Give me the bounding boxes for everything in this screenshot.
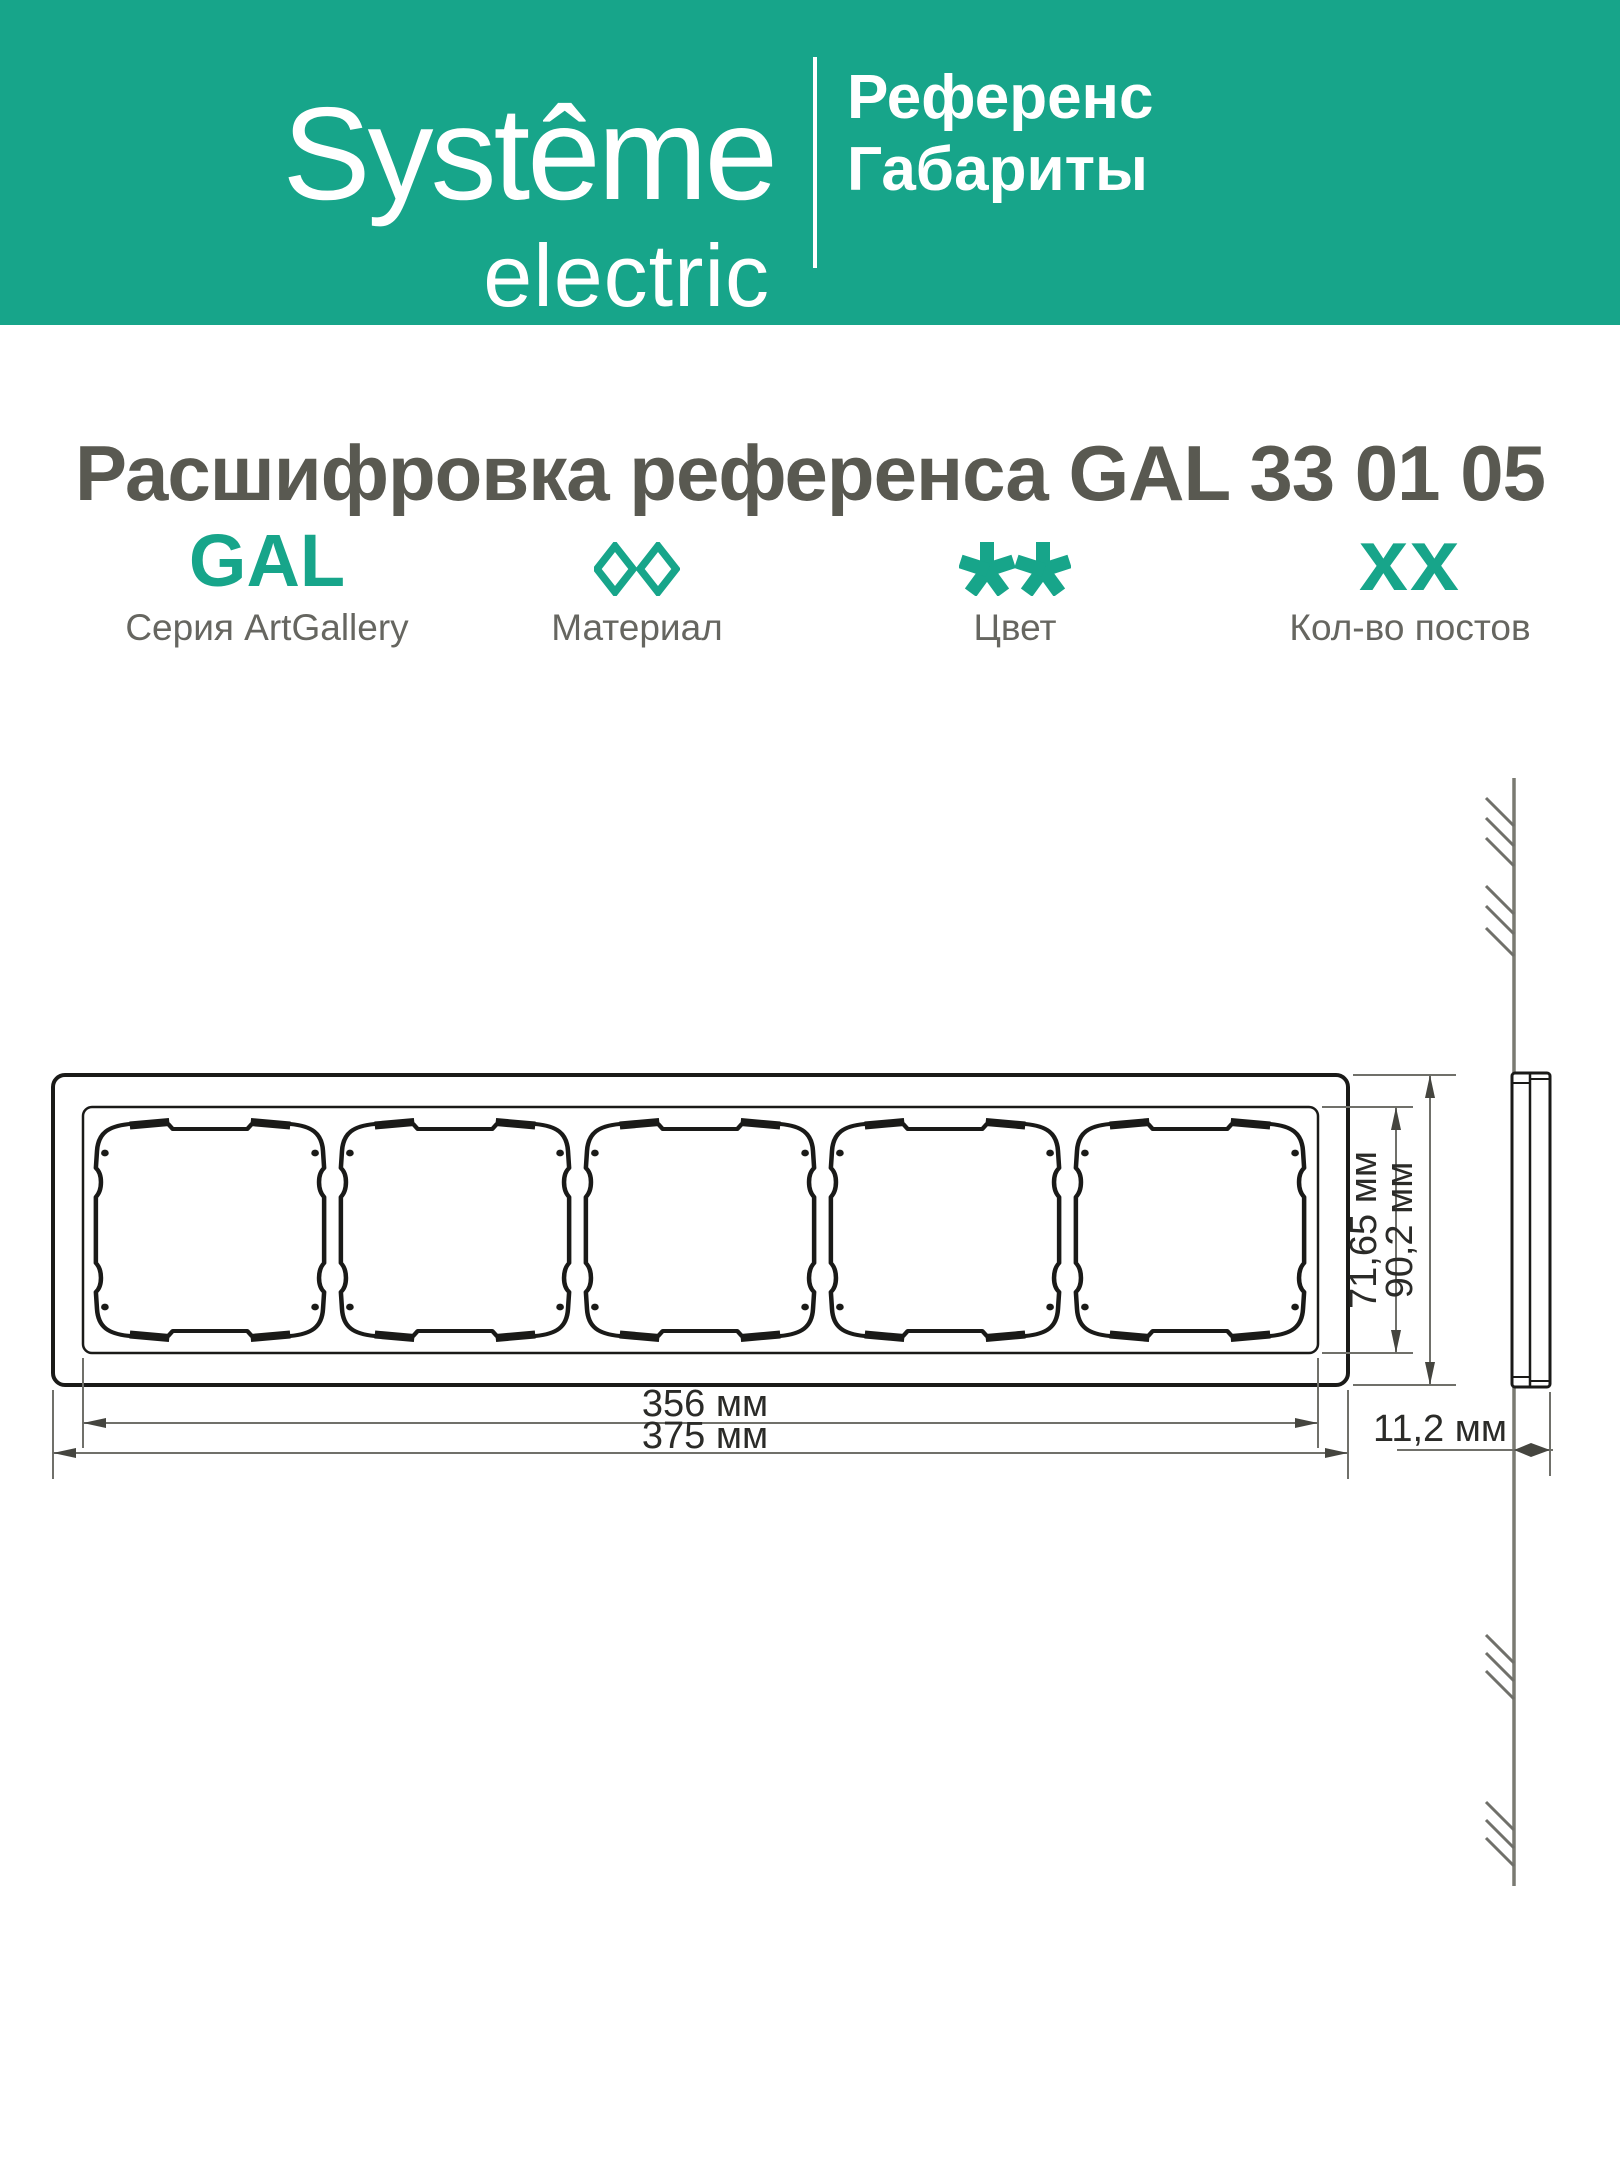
dimension-drawing: 356 мм 375 мм 71,65 мм 90,2 мм 11,2 мм: [0, 0, 1620, 2160]
socket-window: [586, 1122, 814, 1338]
dim-frame-width: 375 мм: [642, 1415, 768, 1457]
dim-depth: 11,2 мм: [1373, 1408, 1507, 1450]
dim-frame-height: 90,2 мм: [1379, 1162, 1421, 1299]
hatch-marks: [1486, 798, 1514, 1866]
socket-window: [831, 1122, 1059, 1338]
socket-window: [341, 1122, 569, 1338]
front-view: [53, 1075, 1348, 1385]
side-view: [1512, 1073, 1550, 1387]
socket-window: [1076, 1122, 1304, 1338]
page: Systême electric Референс Габариты Расши…: [0, 0, 1620, 2160]
socket-window: [96, 1122, 324, 1338]
